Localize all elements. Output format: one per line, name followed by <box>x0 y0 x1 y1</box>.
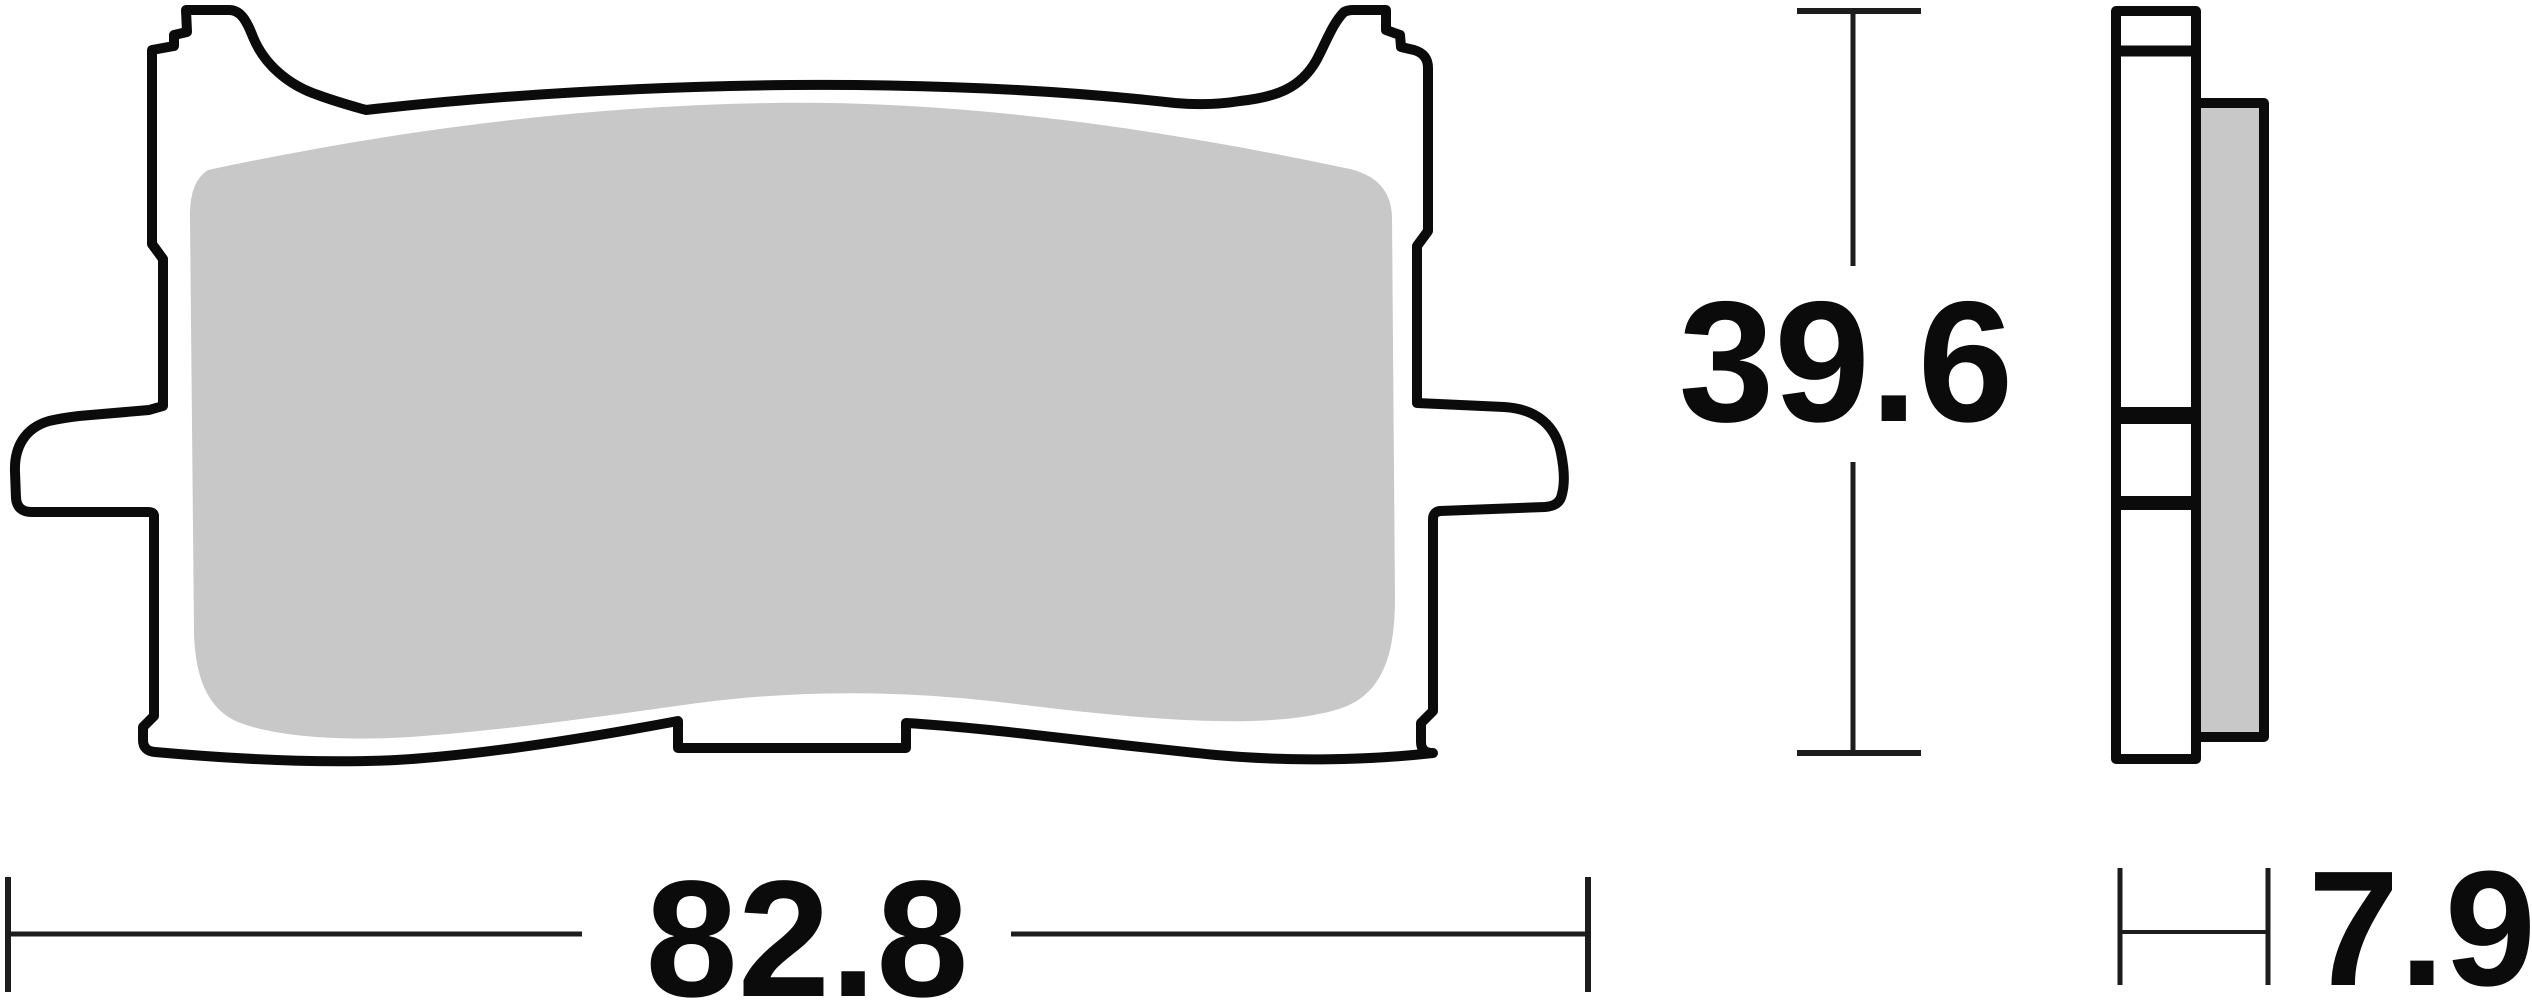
front-view <box>15 10 1564 761</box>
brake-pad-technical-drawing: 39.6 82.8 7.9 <box>0 0 2532 1000</box>
front-view-friction-material <box>190 103 1395 739</box>
side-view-friction-material <box>2196 103 2264 737</box>
height-dimension-label: 39.6 <box>1679 266 2014 458</box>
thickness-dimension-label: 7.9 <box>2308 837 2532 1000</box>
side-view-backplate <box>2116 11 2196 759</box>
thickness-dimension <box>2120 868 2268 985</box>
side-view <box>2112 11 2264 759</box>
width-dimension-label: 82.8 <box>645 847 968 1000</box>
technical-drawing-canvas: 39.6 82.8 7.9 <box>0 0 2532 1000</box>
side-view-upper-slot <box>2113 407 2199 424</box>
side-view-lower-slot <box>2113 496 2199 510</box>
